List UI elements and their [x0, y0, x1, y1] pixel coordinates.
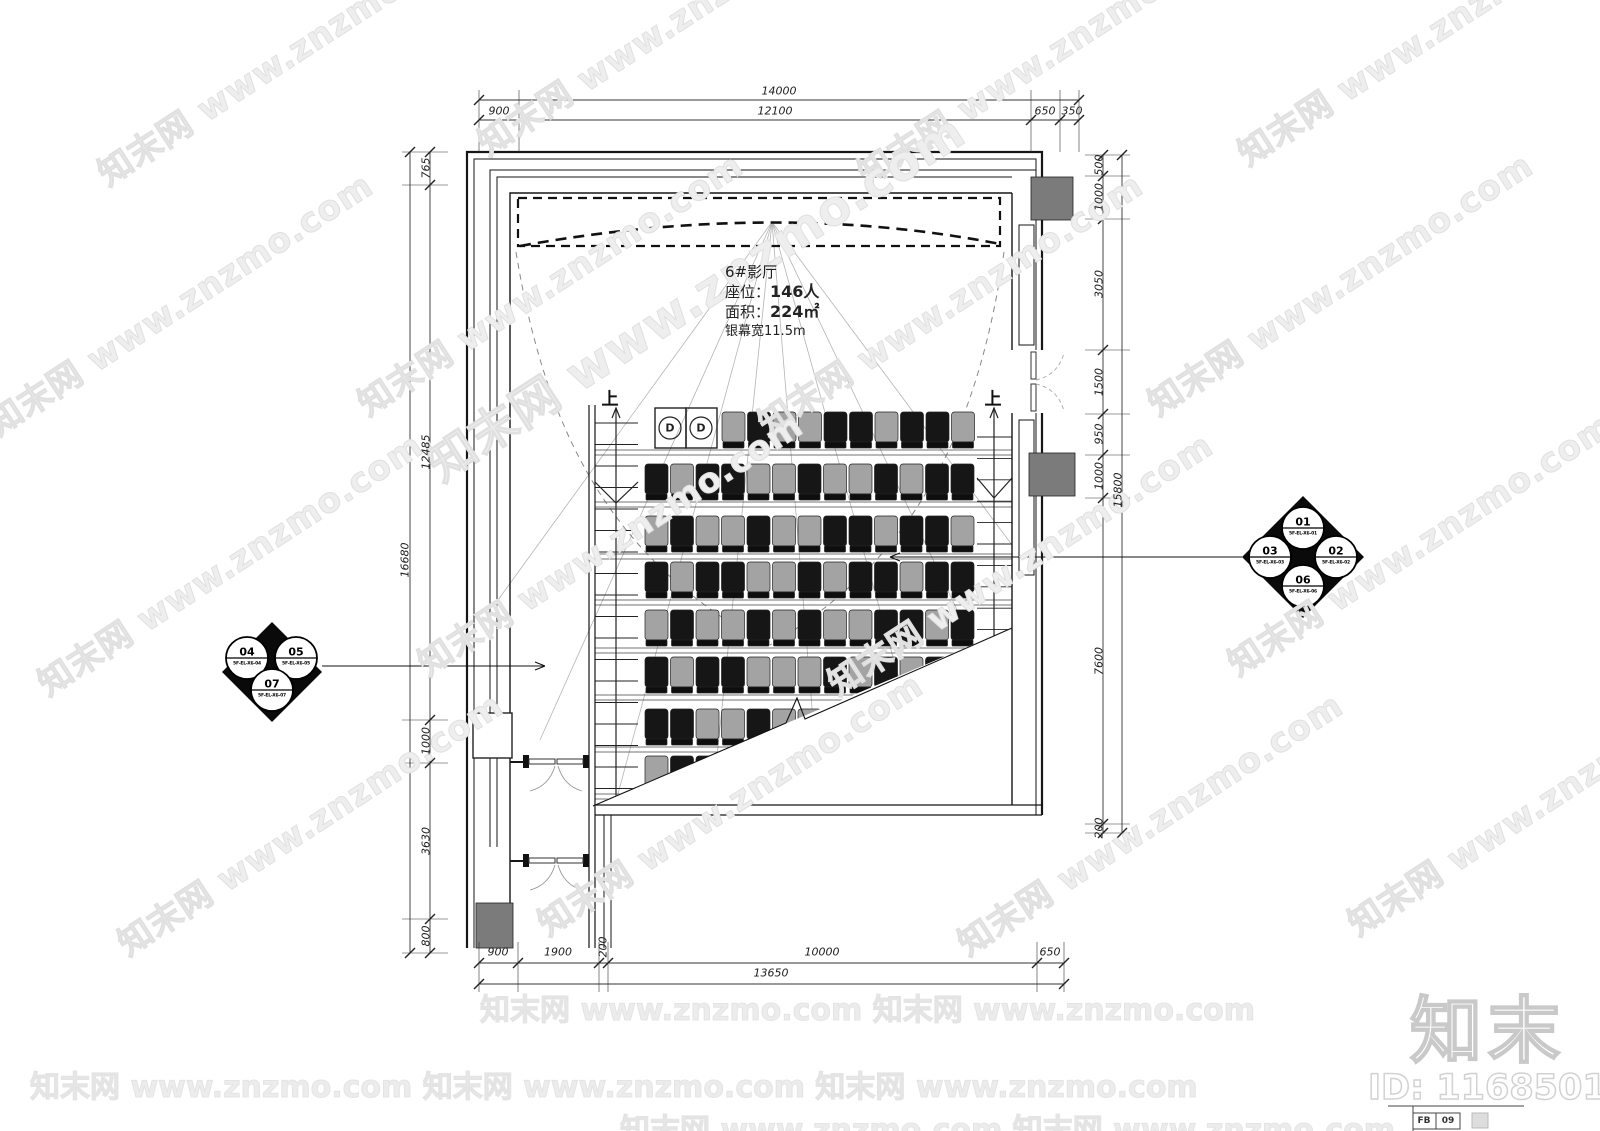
dim-top-seg: 12100 — [758, 105, 793, 118]
dim-top-seg: 900 — [489, 105, 510, 118]
callout-ref: 5F-EL-X6-01 — [1289, 532, 1317, 537]
wheelchair-spaces — [655, 408, 717, 448]
site-logo: 知末 — [1410, 972, 1566, 1077]
accessible-seat-label: D — [665, 422, 674, 435]
titleblock-fragment — [1388, 1106, 1524, 1131]
callout-number: 01 — [1295, 516, 1310, 529]
callout-number: 07 — [264, 678, 279, 691]
dim-left-seg: 1000 — [420, 727, 433, 755]
callout-ref: 5F-EL-X6-05 — [282, 662, 310, 667]
callout-ref: 5F-EL-X6-03 — [1256, 561, 1284, 566]
screen-outline — [518, 198, 1000, 246]
dim-top-seg: 350 — [1062, 105, 1083, 118]
dim-bottom-seg: 1900 — [544, 946, 572, 959]
dim-bottom-seg: 900 — [488, 946, 509, 959]
dim-right-seg: 500 — [1093, 155, 1106, 176]
room-area: 面积：224㎡ — [725, 302, 819, 322]
dim-top-overall: 14000 — [762, 85, 797, 98]
dim-left-seg: 765 — [420, 158, 433, 179]
callout-number: 02 — [1328, 545, 1343, 558]
callout-ref: 5F-EL-X6-07 — [258, 694, 286, 699]
dim-bottom-seg: 200 — [597, 937, 610, 958]
dim-left-overall: 16680 — [399, 543, 412, 578]
dim-bottom-seg: 650 — [1040, 946, 1061, 959]
dim-right-seg: 7600 — [1093, 647, 1106, 675]
callout-number: 05 — [288, 646, 303, 659]
dim-right-seg: 200 — [1093, 818, 1106, 839]
dim-right-seg: 1500 — [1093, 368, 1106, 396]
titleblock-cell: FB — [1417, 1116, 1430, 1126]
callout-ref: 5F-EL-X6-04 — [233, 662, 261, 667]
room-screen-width: 银幕宽11.5m — [725, 322, 819, 342]
callout-number: 04 — [239, 646, 254, 659]
callout-number: 03 — [1262, 545, 1277, 558]
callout-ref: 5F-EL-X6-06 — [1289, 590, 1317, 595]
stair-up-label-left: 上 — [602, 385, 619, 410]
room-seats: 座位：146人 — [725, 282, 819, 302]
dim-right-seg: 1000 — [1093, 462, 1106, 490]
dim-right-seg: 950 — [1093, 424, 1106, 445]
dim-right-overall: 15800 — [1112, 473, 1125, 508]
floorplan-drawing — [0, 0, 1600, 1131]
callout-number: 06 — [1295, 574, 1310, 587]
cad-floorplan-canvas: 知末网 www.znzmo.com知末网 www.znzmo.com知末网 ww… — [0, 0, 1600, 1131]
dim-bottom-seg: 10000 — [805, 946, 840, 959]
image-id-text: ID: 1168501527 — [1368, 1068, 1600, 1108]
dim-right-seg: 3050 — [1093, 270, 1106, 298]
dim-right-seg: 1000 — [1093, 183, 1106, 211]
dim-left-seg: 12485 — [420, 435, 433, 470]
titleblock-cell: 09 — [1442, 1116, 1455, 1126]
dim-left-seg: 800 — [420, 926, 433, 947]
callout-ref: 5F-EL-X6-02 — [1322, 561, 1350, 566]
stair-up-label-right: 上 — [985, 385, 1002, 410]
dim-bottom-overall: 13650 — [754, 967, 789, 980]
accessible-seat-label: D — [696, 422, 705, 435]
room-info-block: 6#影厅 座位：146人 面积：224㎡ 银幕宽11.5m — [725, 262, 819, 342]
dim-top-seg: 650 — [1035, 105, 1056, 118]
room-title: 6#影厅 — [725, 262, 819, 282]
dim-left-seg: 3630 — [420, 827, 433, 855]
